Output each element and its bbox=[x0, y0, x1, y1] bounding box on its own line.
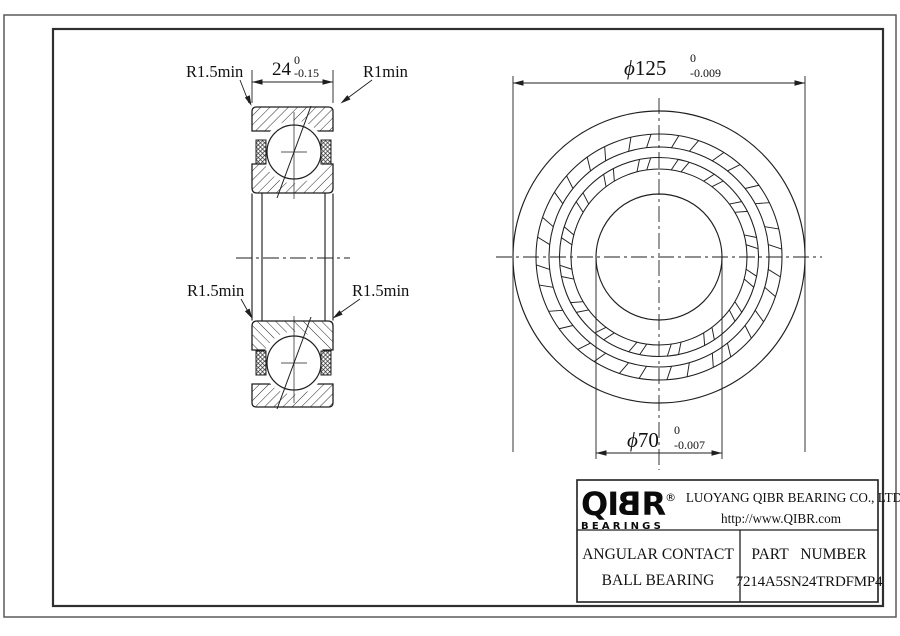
fillet-label-mid-right: R1.5min bbox=[352, 281, 409, 300]
cage-section-bottom-left bbox=[256, 351, 266, 375]
width-dim-tol-upper: 0 bbox=[294, 53, 300, 67]
fillet-label-top-left: R1.5min bbox=[186, 62, 243, 81]
od-dim-tol-lower: -0.009 bbox=[690, 66, 721, 80]
company-website: http://www.QIBR.com bbox=[721, 511, 842, 526]
qibr-logo: QIBR® BEARINGS bbox=[581, 482, 713, 532]
product-name-line2: BALL BEARING bbox=[602, 572, 715, 589]
part-number-value: 7214A5SN24TRDFMP4 bbox=[736, 574, 883, 590]
cage-section-top-left bbox=[256, 140, 266, 164]
bore-silhouette-lines bbox=[252, 194, 333, 321]
od-dim-tol-upper: 0 bbox=[690, 51, 696, 65]
od-dim-value: ϕ125 bbox=[624, 56, 666, 80]
fillet-label-top-right: R1min bbox=[363, 62, 408, 81]
fillet-label-mid-left: R1.5min bbox=[187, 281, 244, 300]
width-dim-value: 24 bbox=[272, 59, 292, 80]
part-number-label: PART NUMBER bbox=[751, 546, 867, 563]
page-border bbox=[4, 15, 896, 617]
side-section-view bbox=[236, 106, 350, 409]
product-name-line1: ANGULAR CONTACT bbox=[582, 546, 734, 563]
registered-mark-icon: ® bbox=[665, 491, 676, 504]
drawing-canvas: R1.5min R1min R1.5min R1.5min 24 0 -0.15 bbox=[0, 0, 900, 636]
bore-dim-tol-lower: -0.007 bbox=[674, 438, 705, 452]
cage-section-bottom-right bbox=[321, 351, 331, 375]
bore-dim-tol-upper: 0 bbox=[674, 423, 680, 437]
company-name: LUOYANG QIBR BEARING CO., LTD bbox=[686, 490, 900, 505]
front-view bbox=[496, 98, 822, 470]
cage-section-top-right bbox=[321, 140, 331, 164]
qibr-logo-subtext: BEARINGS bbox=[581, 521, 713, 532]
width-dim-tol-lower: -0.15 bbox=[294, 66, 319, 80]
drawing-page: R1.5min R1min R1.5min R1.5min 24 0 -0.15 bbox=[0, 0, 900, 636]
bore-dim-value: ϕ70 bbox=[627, 428, 659, 452]
qibr-logo-wordmark: QIBR® bbox=[581, 482, 713, 520]
